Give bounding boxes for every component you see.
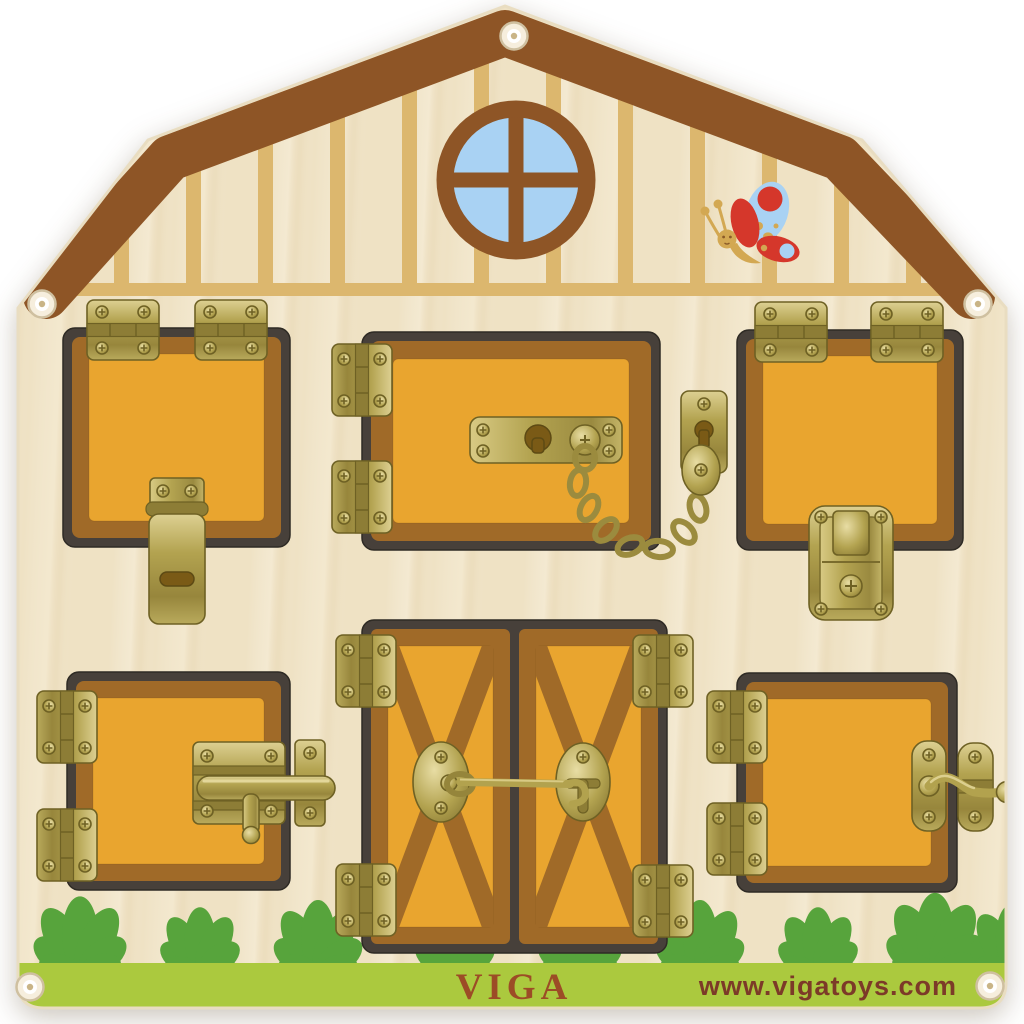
door-bottom-left bbox=[37, 672, 335, 890]
barn-board-graphic: VIGA www.vigatoys.com bbox=[0, 0, 1024, 1024]
window-muntin-vertical bbox=[509, 116, 524, 244]
eyelet-screw-peak bbox=[501, 23, 528, 50]
eyelet-screw-bottom-left bbox=[17, 974, 44, 1001]
hinge-icon bbox=[332, 344, 392, 416]
hinge-icon bbox=[707, 691, 767, 763]
gable-base-stripe bbox=[20, 283, 1004, 296]
barn-board: VIGA www.vigatoys.com bbox=[0, 0, 1024, 1024]
hasp-latch-icon bbox=[146, 478, 208, 624]
eyelet-screw-bottom-right bbox=[977, 973, 1004, 1000]
hinge-icon bbox=[871, 302, 943, 362]
hinge-icon bbox=[195, 300, 267, 360]
hinge-icon bbox=[707, 803, 767, 875]
product-photo-viga-barn-busy-board: VIGA www.vigatoys.com bbox=[0, 0, 1024, 1024]
website-text: www.vigatoys.com bbox=[698, 971, 957, 1001]
case-clasp-icon bbox=[809, 506, 893, 620]
hinge-icon bbox=[37, 691, 97, 763]
round-window bbox=[445, 109, 587, 251]
hinge-icon bbox=[87, 300, 159, 360]
hinge-icon bbox=[755, 302, 827, 362]
eyelet-screw-right-roof bbox=[965, 291, 992, 318]
double-door-center bbox=[336, 620, 693, 953]
hinge-icon bbox=[633, 635, 693, 707]
hinge-icon bbox=[336, 635, 396, 707]
eyelet-screw-left-roof bbox=[29, 291, 56, 318]
brand-logo: VIGA bbox=[456, 967, 573, 1008]
hinge-icon bbox=[37, 809, 97, 881]
hinge-icon bbox=[633, 865, 693, 937]
hinge-icon bbox=[336, 864, 396, 936]
hinge-icon bbox=[332, 461, 392, 533]
